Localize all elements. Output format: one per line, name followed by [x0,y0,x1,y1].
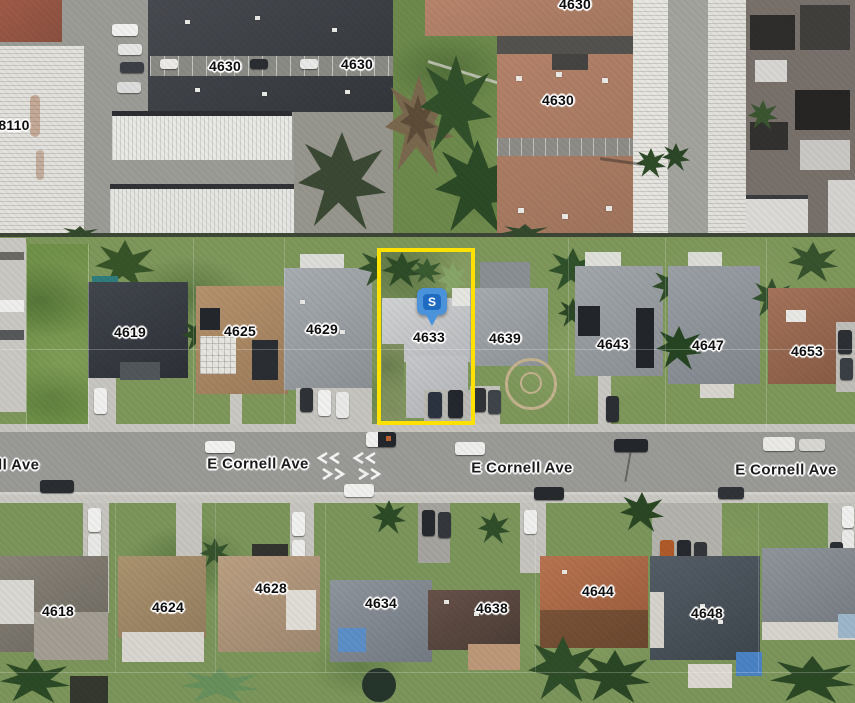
parcel-label: 4647 [692,337,724,353]
porch [120,362,160,380]
roof-vent [518,208,524,213]
car [455,442,485,455]
car [488,390,501,414]
rust-stain [30,95,40,137]
car [838,330,852,354]
equipment [800,5,850,50]
solar-panel [636,308,654,368]
building [0,0,62,42]
roof-vent [332,28,337,32]
roof-inset [552,54,588,70]
roof-vent [562,570,567,574]
parcel-label: 4630 [341,56,373,72]
roof-vent [606,206,612,211]
solar-panel [252,340,278,380]
house-4639 [470,288,548,366]
parcel-label: 4653 [791,343,823,359]
pool [362,668,396,702]
car [842,506,854,528]
house-4647 [668,266,760,384]
marker-letter: S [428,296,436,308]
parcel-label: 4618 [42,603,74,619]
tarp [338,628,366,652]
sidewalk-north [0,424,855,432]
patio [700,384,734,398]
lane-arrow-right [320,468,346,480]
house-4638-wing [468,644,520,670]
car [718,487,744,499]
car [344,484,374,497]
car [292,512,305,536]
car [88,508,101,532]
car [336,392,349,418]
parking-strip [497,138,633,156]
truck-cargo [386,436,391,441]
solar-panel [200,308,220,330]
building [0,46,84,234]
parcel-label: 4619 [114,324,146,340]
car [120,62,144,73]
rust-stain [36,150,44,180]
house-right-edge [762,548,855,622]
street-label: ll Ave [0,457,39,474]
parcel-label: 4634 [365,595,397,611]
van [763,437,795,451]
vacant-lot [26,244,90,430]
solar-panel [578,306,600,336]
parcel-label: 4630 [559,0,591,12]
car [300,59,318,69]
marker-tail [425,313,439,326]
roof-vent [345,90,350,94]
car [117,82,141,93]
lane-arrow-right [356,468,382,480]
car [300,388,313,412]
roof-shadow [540,610,648,648]
parcel-label: 8110 [0,117,30,133]
equipment [0,252,24,260]
building [828,180,855,236]
street-label: E Cornell Ave [207,456,309,473]
car [118,44,142,55]
car [318,390,331,416]
parcel-label: 4630 [209,58,241,74]
house-4648-strip [650,592,664,648]
solar-panel [786,310,806,322]
car [250,59,268,69]
roof-vent [255,16,260,20]
property-marker-icon[interactable]: S [417,288,447,330]
marker-head: S [417,288,447,315]
warehouse [112,116,292,160]
alley [497,36,633,54]
tarp [838,614,855,638]
lane-arrow-left [316,452,342,464]
equipment [0,330,24,340]
house-4618-wing [34,612,108,660]
garage [70,676,108,703]
car [438,512,451,538]
parcel-label: 4639 [489,330,521,346]
equipment [0,300,24,312]
house-4624-patio [122,632,204,662]
roof-vent [185,20,190,24]
alley-road [668,0,708,236]
roof-vent [562,214,568,219]
roof-vent [444,600,449,604]
gable [480,262,530,290]
patio [688,664,732,688]
patio-cover [200,336,236,374]
trailer [799,439,825,451]
car [40,480,74,493]
parcel-label: 4628 [255,580,287,596]
street-label: E Cornell Ave [735,462,837,479]
car [840,358,853,380]
warehouse [633,0,668,236]
equipment [795,90,850,130]
roof-vent [340,330,345,334]
parcel-label: 4644 [582,583,614,599]
parcel-label: 4629 [306,321,338,337]
roof-vent [195,88,200,92]
equipment [755,60,787,82]
parcel-label-highlighted: 4633 [413,329,445,345]
roof-vent [300,300,305,304]
roof-vent [556,72,562,77]
warehouse [110,189,306,236]
garage [286,590,316,630]
house-4624 [118,556,206,638]
equipment [750,15,795,50]
lane-arrow-left [352,452,378,464]
garden-circle [520,372,542,394]
parcel-label: 4643 [597,336,629,352]
car [160,59,178,69]
parcel-label: 4638 [476,600,508,616]
warehouse [708,0,746,236]
parcel-label: 4624 [152,599,184,615]
roof-vent [602,78,608,83]
carport [0,580,34,624]
house-4638 [428,590,520,650]
marker-inner-square: S [423,294,441,310]
roof-vent [262,92,267,96]
car [94,388,107,414]
street-asphalt [0,432,855,494]
car [112,24,138,36]
car [422,510,435,536]
satellite-map[interactable]: S 8110 4630 4630 4630 4630 4619 4625 462… [0,0,855,703]
truck [366,432,396,447]
parcel-label: 4625 [224,323,256,339]
equipment [800,140,850,170]
car [534,487,564,500]
apartment-building [425,0,633,36]
parcel-label: 4648 [691,605,723,621]
industrial-lot [0,238,26,412]
parcel-label: 4630 [542,92,574,108]
car [606,396,619,422]
street-label: E Cornell Ave [471,460,573,477]
roof-vent [516,76,522,81]
car [205,441,235,453]
